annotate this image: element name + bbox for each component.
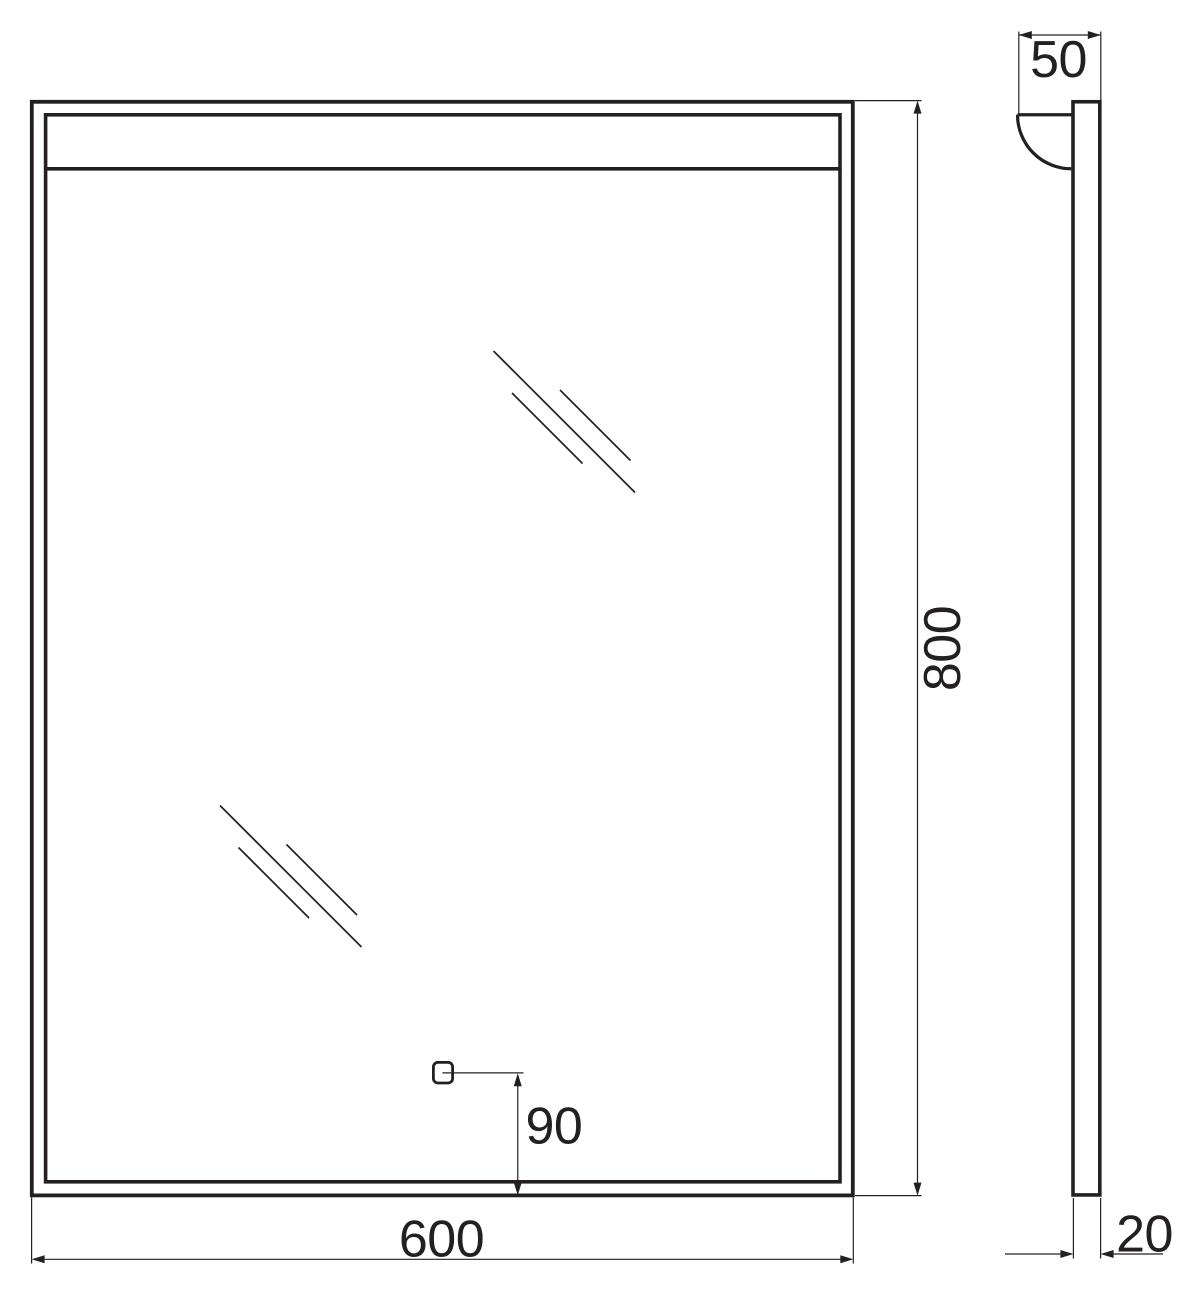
svg-text:800: 800 xyxy=(914,606,972,691)
svg-text:600: 600 xyxy=(399,1211,484,1269)
svg-text:50: 50 xyxy=(1030,31,1087,89)
svg-text:20: 20 xyxy=(1116,1206,1173,1264)
svg-text:90: 90 xyxy=(526,1098,583,1156)
